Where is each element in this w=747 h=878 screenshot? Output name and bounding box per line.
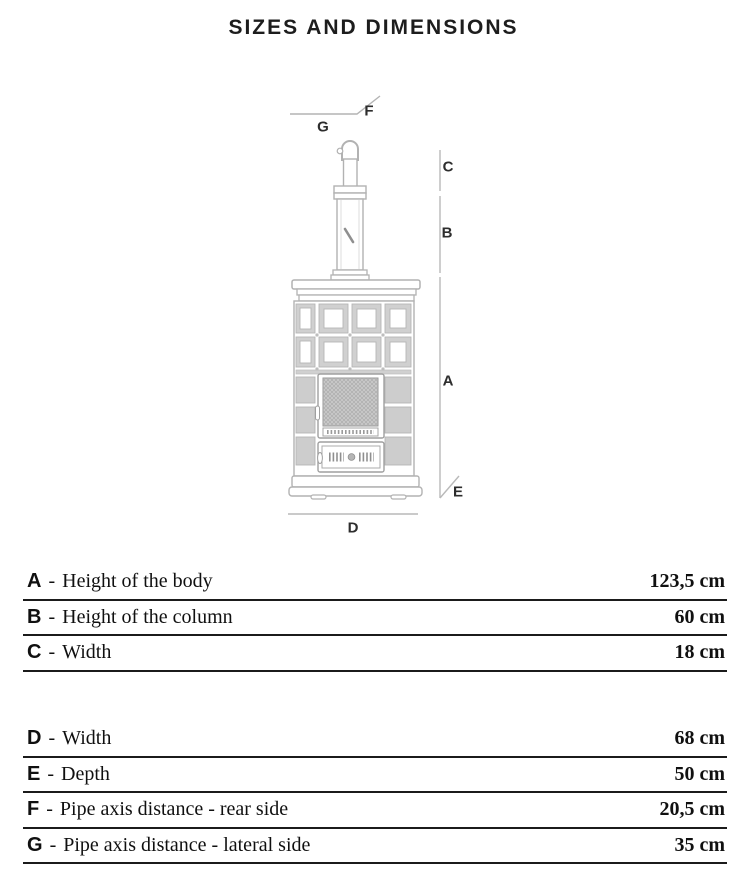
dim-label-b: B: [442, 226, 453, 241]
spec-desc: Pipe axis distance - lateral side: [63, 834, 310, 856]
table-row: F-Pipe axis distance - rear side 20,5 cm: [23, 793, 727, 829]
spec-desc: Depth: [61, 763, 110, 785]
table-row: D-Width 68 cm: [23, 722, 727, 758]
spec-value: 60 cm: [674, 606, 725, 629]
spec-key: C: [27, 641, 41, 663]
table-row: E-Depth 50 cm: [23, 758, 727, 794]
spec-desc: Width: [62, 727, 111, 749]
spec-label: C-Width: [27, 641, 111, 664]
spec-desc: Height of the body: [62, 570, 213, 592]
stove-illustration: [0, 0, 747, 560]
dim-label-c: C: [443, 160, 454, 175]
dim-label-a: A: [443, 374, 454, 389]
spec-desc: Pipe axis distance - rear side: [60, 798, 288, 820]
spec-sheet-page: SIZES AND DIMENSIONS: [0, 0, 747, 878]
spec-label: F-Pipe axis distance - rear side: [27, 798, 288, 821]
spec-value: 68 cm: [674, 727, 725, 750]
dim-label-e: E: [453, 485, 463, 500]
spec-separator: -: [48, 727, 55, 749]
dim-label-d: D: [348, 521, 359, 536]
table-row: G-Pipe axis distance - lateral side 35 c…: [23, 829, 727, 865]
spec-label: A-Height of the body: [27, 570, 213, 593]
spec-value: 123,5 cm: [649, 570, 725, 593]
table-row: C-Width 18 cm: [23, 636, 727, 672]
stove-dimension-diagram: F G C B A E D: [0, 0, 747, 560]
spec-label: G-Pipe axis distance - lateral side: [27, 834, 310, 857]
spec-table-footprint-dimensions: D-Width 68 cm E-Depth 50 cm F-Pipe axis …: [23, 722, 727, 864]
spec-desc: Height of the column: [62, 606, 233, 628]
spec-key: D: [27, 727, 41, 749]
spec-label: D-Width: [27, 727, 111, 750]
spec-separator: -: [47, 763, 54, 785]
table-row: B-Height of the column 60 cm: [23, 601, 727, 637]
spec-separator: -: [50, 834, 57, 856]
spec-separator: -: [48, 606, 55, 628]
spec-separator: -: [48, 570, 55, 592]
spec-value: 35 cm: [674, 834, 725, 857]
spec-separator: -: [46, 798, 53, 820]
spec-value: 18 cm: [674, 641, 725, 664]
spec-key: B: [27, 606, 41, 628]
spec-label: E-Depth: [27, 763, 110, 786]
spec-value: 50 cm: [674, 763, 725, 786]
dim-label-g: G: [317, 120, 329, 135]
spec-label: B-Height of the column: [27, 606, 233, 629]
spec-value: 20,5 cm: [659, 798, 725, 821]
spec-desc: Width: [62, 641, 111, 663]
spec-separator: -: [48, 641, 55, 663]
spec-key: A: [27, 570, 41, 592]
table-row: A-Height of the body 123,5 cm: [23, 565, 727, 601]
dim-label-f: F: [364, 104, 373, 119]
spec-key: F: [27, 798, 39, 820]
spec-key: G: [27, 834, 43, 856]
spec-table-body-dimensions: A-Height of the body 123,5 cm B-Height o…: [23, 565, 727, 672]
spec-key: E: [27, 763, 40, 785]
